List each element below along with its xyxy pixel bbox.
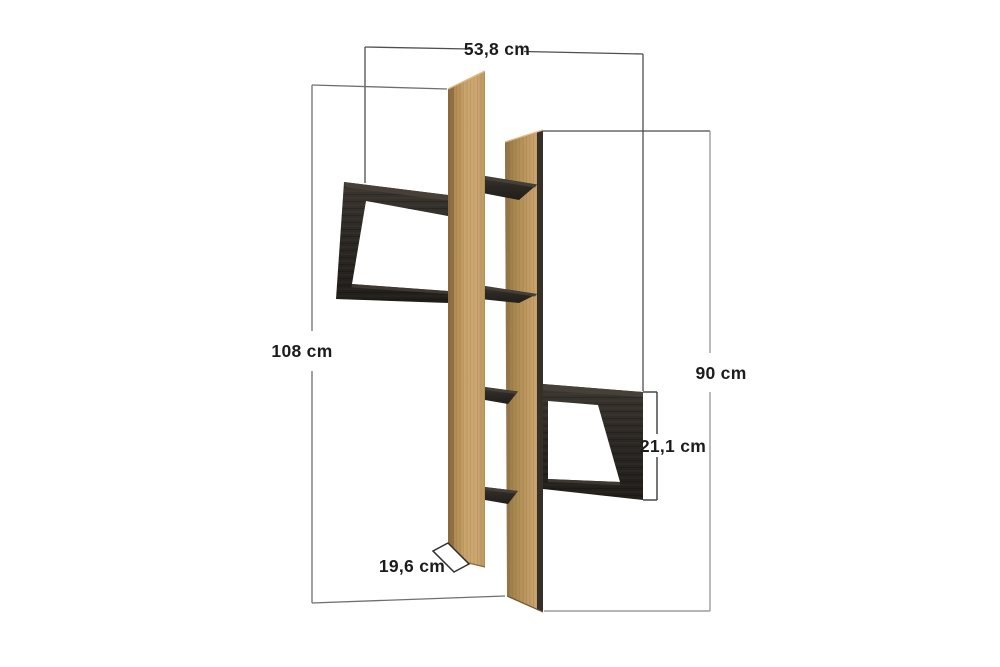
dimension-depth-label: 19,6 cm xyxy=(379,556,445,576)
left-box-shelf xyxy=(336,182,448,303)
diagram-canvas: 53,8 cm 108 cm 90 cm 21,1 cm 19,6 cm xyxy=(0,0,1000,667)
dimension-width-label: 53,8 cm xyxy=(464,39,530,59)
right-box-shelf xyxy=(543,384,643,500)
dimension-height-right-lines xyxy=(543,131,710,611)
dimension-width-lines xyxy=(365,47,643,391)
shelf-dimension-diagram: 53,8 cm 108 cm 90 cm 21,1 cm 19,6 cm xyxy=(0,0,1000,667)
right-panel-edge-shadow xyxy=(537,130,543,612)
left-panel-edge-shadow xyxy=(448,86,454,560)
left-oak-panel xyxy=(448,71,485,567)
dimension-compartment-label: 21,1 cm xyxy=(640,436,706,456)
right-oak-panel xyxy=(505,130,543,612)
shelf-unit xyxy=(336,71,643,612)
dimension-height-right-label: 90 cm xyxy=(695,363,746,383)
dimension-height-left-label: 108 cm xyxy=(271,341,332,361)
